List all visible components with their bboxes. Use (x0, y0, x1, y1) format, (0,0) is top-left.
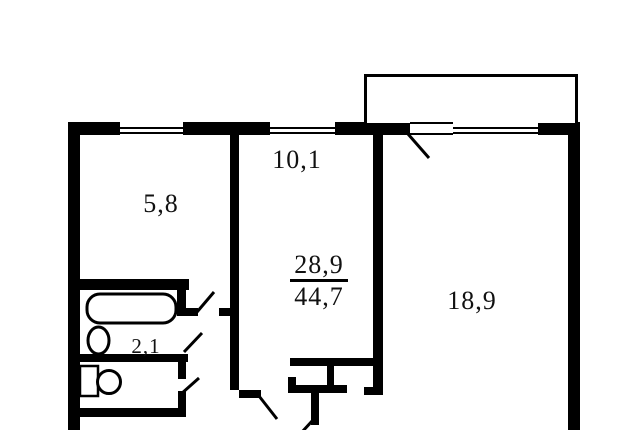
room-label-10-1: 10,1 (257, 145, 337, 175)
wc-door-swing (184, 333, 202, 352)
entry-door-swing (302, 420, 313, 430)
hall-door-swing (259, 396, 277, 419)
floor-plan: 5,8 10,1 18,9 2,1 28,9 44,7 (0, 0, 640, 430)
toilet-icon (88, 327, 109, 354)
balcony-door-swing (408, 134, 429, 158)
room-label-18-9: 18,9 (432, 286, 512, 316)
room-label-2-1: 2,1 (116, 334, 176, 359)
fixtures-layer (0, 0, 640, 430)
sink-bowl-icon (98, 371, 121, 394)
sink-box-icon (80, 366, 98, 396)
living-area-value: 28,9 (288, 251, 350, 278)
lower-room-door-swing (181, 378, 199, 394)
bath-door-swing (197, 292, 214, 312)
bathtub-icon (87, 294, 176, 323)
room-label-5-8: 5,8 (121, 189, 201, 219)
total-area-value: 44,7 (288, 283, 350, 310)
area-summary: 28,9 44,7 (288, 251, 350, 310)
